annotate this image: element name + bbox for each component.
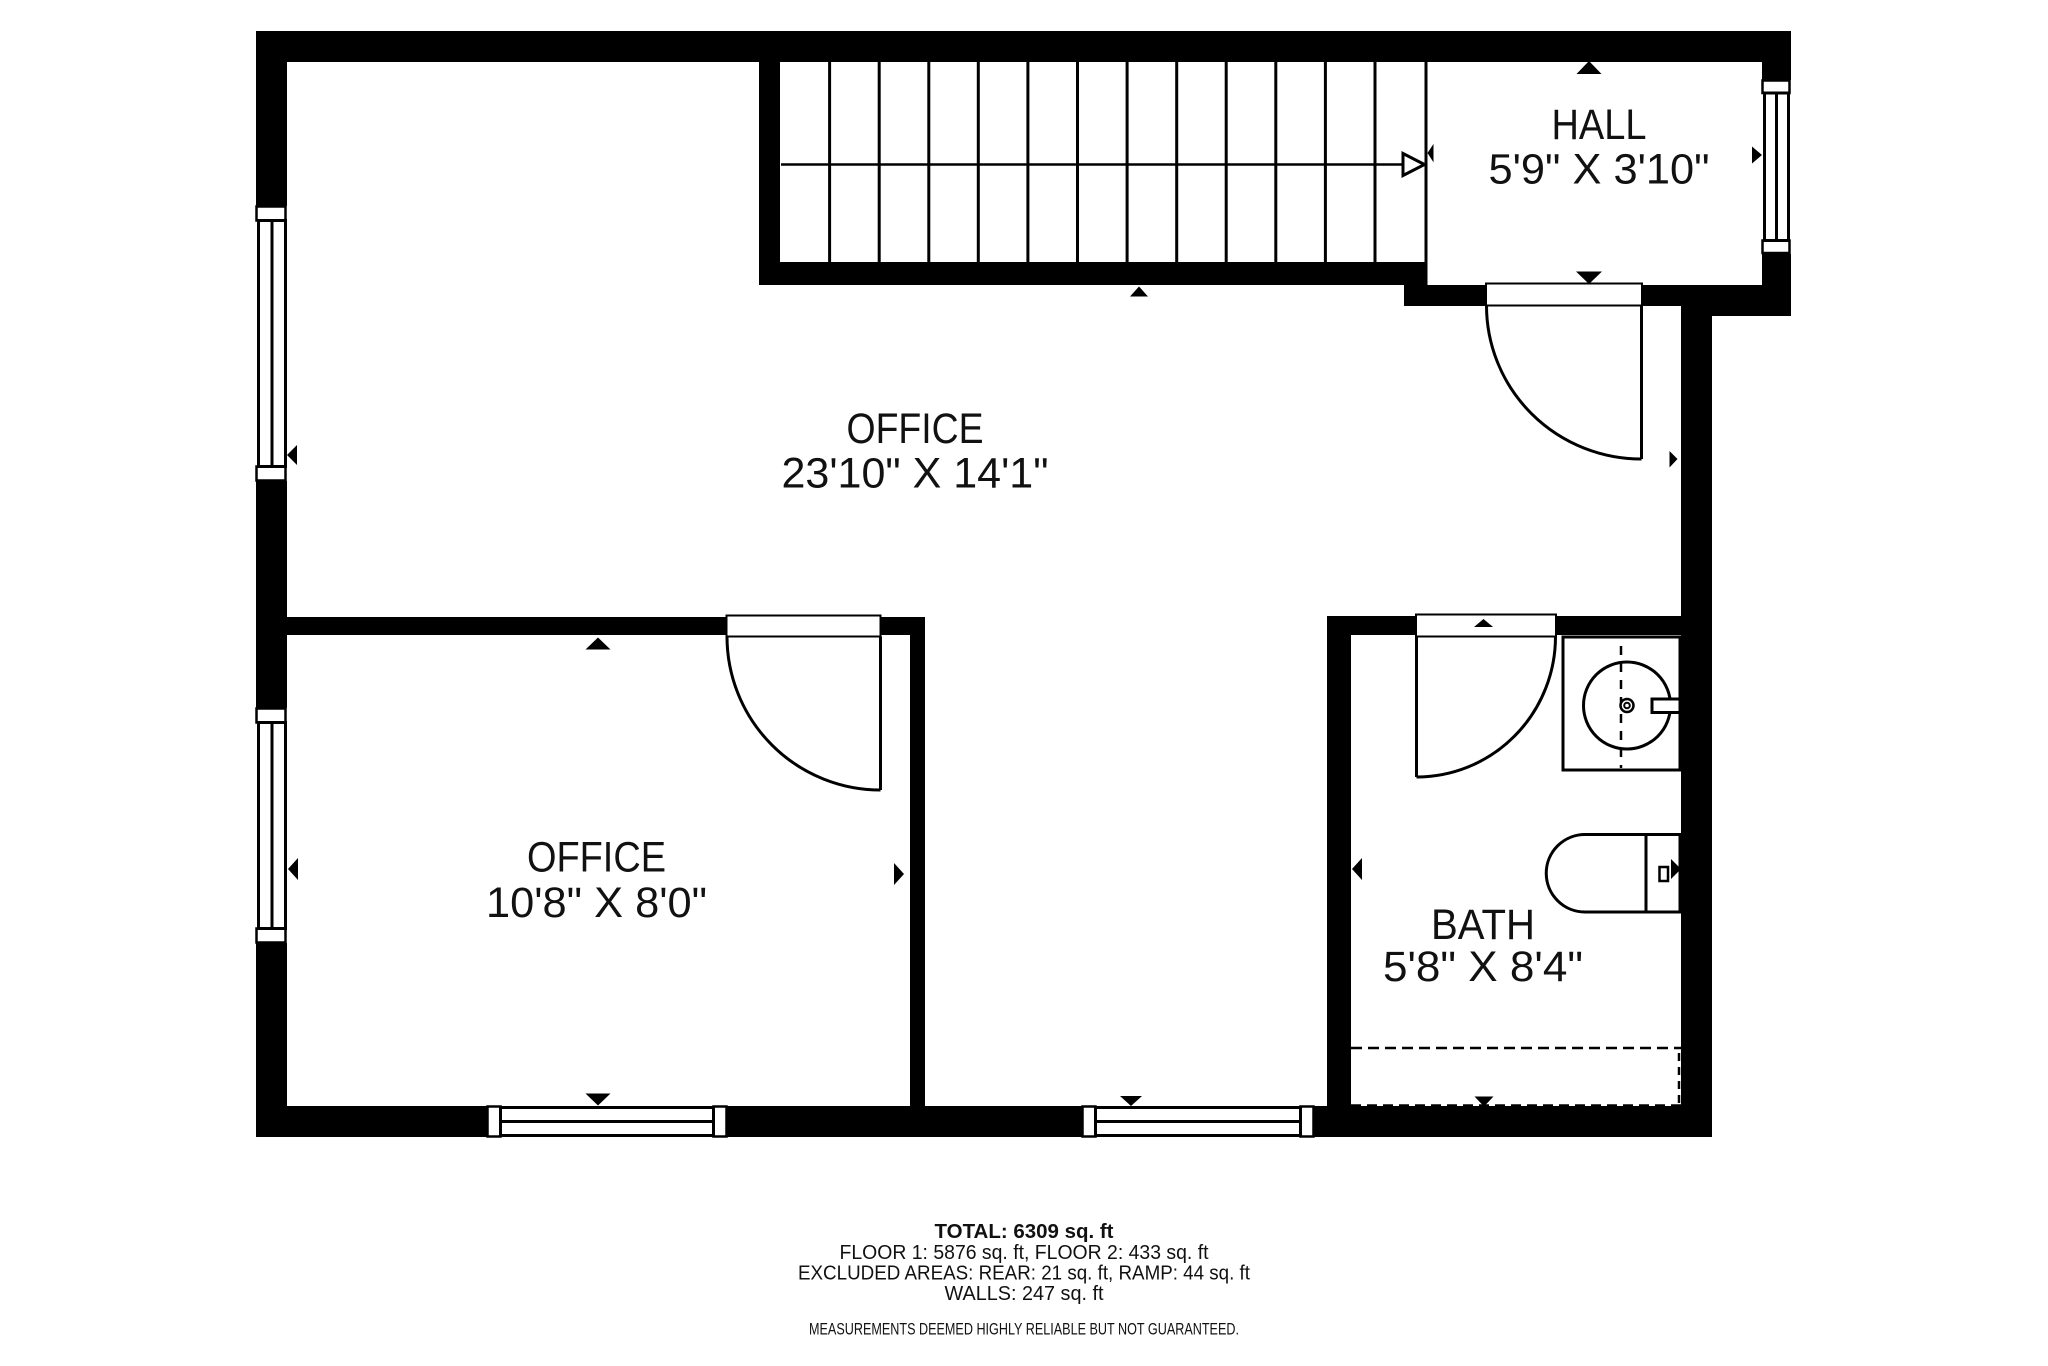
svg-text:23'10" X 14'1": 23'10" X 14'1" xyxy=(782,451,1049,498)
svg-text:OFFICE: OFFICE xyxy=(527,835,666,882)
svg-text:WALLS: 247 sq. ft: WALLS: 247 sq. ft xyxy=(945,1282,1104,1305)
svg-text:BATH: BATH xyxy=(1431,902,1535,949)
svg-text:OFFICE: OFFICE xyxy=(847,406,984,453)
svg-text:5'8" X 8'4": 5'8" X 8'4" xyxy=(1383,944,1583,991)
svg-text:5'9" X 3'10": 5'9" X 3'10" xyxy=(1489,147,1710,194)
svg-text:MEASUREMENTS DEEMED HIGHLY REL: MEASUREMENTS DEEMED HIGHLY RELIABLE BUT … xyxy=(809,1321,1239,1339)
svg-text:TOTAL: 6309 sq. ft: TOTAL: 6309 sq. ft xyxy=(935,1220,1114,1243)
svg-text:10'8" X 8'0": 10'8" X 8'0" xyxy=(486,880,707,927)
svg-text:HALL: HALL xyxy=(1552,102,1647,149)
